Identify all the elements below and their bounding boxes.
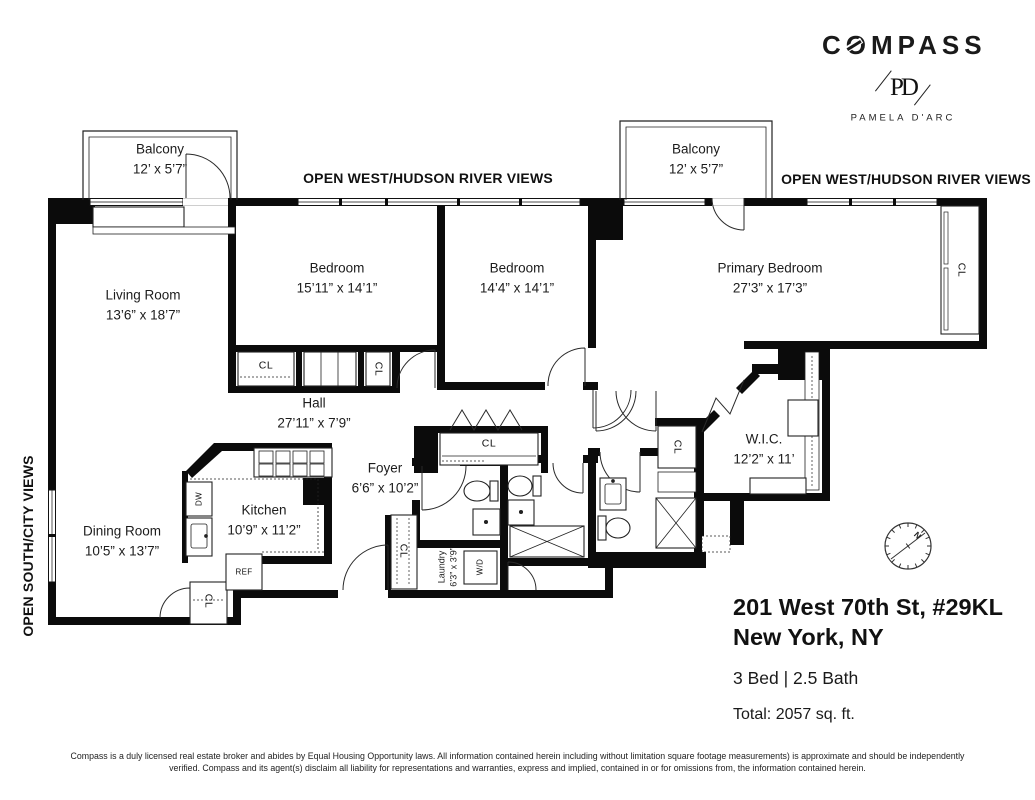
washer-dryer-label: W/D: [474, 559, 485, 575]
closet-label: CL: [396, 544, 411, 558]
room-label-foyer: Foyer 6’6” x 10’2”: [352, 458, 419, 497]
disclaimer-line-1: Compass is a duly licensed real estate b…: [28, 750, 1008, 762]
address-line-1: 201 West 70th St, #29KL: [733, 592, 1003, 622]
refrigerator-label: REF: [236, 566, 253, 577]
closet-label: CL: [954, 263, 969, 277]
room-label-dining-room: Dining Room 10’5” x 13’7”: [83, 521, 161, 560]
room-label-living-room: Living Room 13’6” x 18’7”: [105, 285, 180, 324]
total-sqft: Total: 2057 sq. ft.: [733, 706, 1003, 724]
room-label-primary-bedroom: Primary Bedroom 27’3” x 17’3”: [717, 258, 822, 297]
beds-baths: 3 Bed | 2.5 Bath: [733, 668, 1003, 689]
closet-label: CL: [482, 437, 496, 452]
closet-label: CL: [670, 440, 685, 454]
closet-label: CL: [371, 362, 386, 376]
view-label-west-left: OPEN WEST/HUDSON RIVER VIEWS: [303, 169, 553, 189]
closet-label: CL: [259, 359, 273, 374]
compass-rose-icon: [885, 523, 931, 569]
room-label-laundry: Laundry 6’3” x 3’9”: [436, 547, 459, 587]
view-label-south: OPEN SOUTH/CITY VIEWS: [19, 455, 39, 636]
listing-info: 201 West 70th St, #29KL New York, NY 3 B…: [733, 592, 1003, 724]
room-label-balcony-right: Balcony 12’ x 5’7”: [669, 139, 723, 178]
agent-monogram: PD: [883, 68, 923, 108]
room-label-wic: W.I.C. 12’2” x 11’: [733, 429, 794, 468]
floorplan-page: COMPASS PD PAMELA D'ARC OPEN WEST/HUDSON…: [0, 0, 1035, 800]
disclaimer: Compass is a duly licensed real estate b…: [28, 750, 1008, 774]
closet-label: CL: [201, 594, 216, 608]
toilet: [508, 476, 532, 496]
room-label-bedroom-2: Bedroom 14’4” x 14’1”: [480, 258, 554, 297]
toilet: [464, 481, 490, 501]
room-label-balcony-left: Balcony 12’ x 5’7”: [133, 139, 187, 178]
room-label-kitchen: Kitchen 10’9” x 11’2”: [227, 500, 300, 539]
toilet: [606, 518, 630, 538]
disclaimer-line-2: verified. Compass and its agent(s) discl…: [28, 762, 1008, 774]
dishwasher-label: DW: [193, 492, 204, 506]
agent-name: PAMELA D'ARC: [851, 113, 956, 124]
room-label-hall: Hall 27’11” x 7’9”: [277, 393, 350, 432]
monogram-initials: PD: [890, 74, 916, 102]
room-label-bedroom-1: Bedroom 15’11” x 14’1”: [297, 258, 378, 297]
view-label-west-right: OPEN WEST/HUDSON RIVER VIEWS: [781, 170, 1031, 190]
radiator: [93, 207, 184, 227]
address-line-2: New York, NY: [733, 622, 1003, 652]
